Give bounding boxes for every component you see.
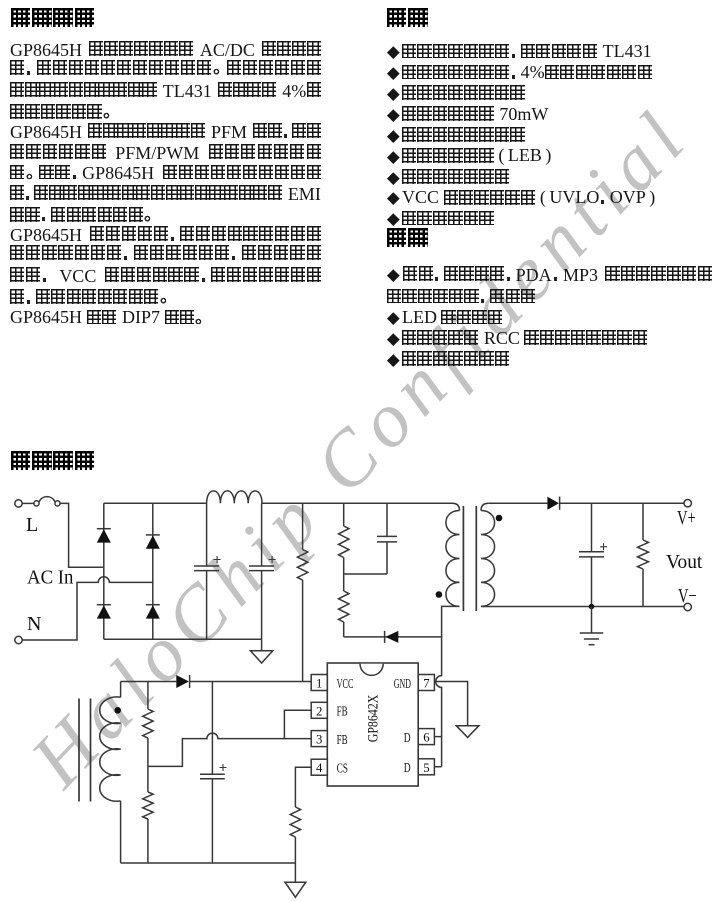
svg-text:4: 4 (316, 761, 323, 775)
svg-text:CS: CS (337, 762, 348, 776)
svg-text:7: 7 (423, 677, 430, 691)
svg-text:D: D (404, 732, 411, 746)
svg-text:D: D (404, 762, 411, 776)
svg-text:VCC: VCC (337, 677, 354, 691)
svg-text:Vout: Vout (666, 551, 703, 573)
svg-text:5: 5 (423, 761, 429, 775)
svg-text:FB: FB (337, 705, 348, 719)
svg-text:V−: V− (678, 584, 697, 607)
svg-text:6: 6 (423, 731, 430, 745)
svg-text:L: L (26, 514, 38, 536)
svg-text:V+: V+ (677, 506, 696, 529)
svg-text:3: 3 (316, 733, 322, 747)
svg-text:FB: FB (337, 733, 348, 747)
svg-text:AC In: AC In (27, 567, 74, 589)
svg-text:N: N (27, 613, 41, 635)
svg-text:GP8642X: GP8642X (364, 694, 380, 742)
svg-text:GND: GND (394, 677, 411, 692)
svg-text:1: 1 (316, 677, 322, 691)
svg-text:2: 2 (316, 704, 322, 718)
